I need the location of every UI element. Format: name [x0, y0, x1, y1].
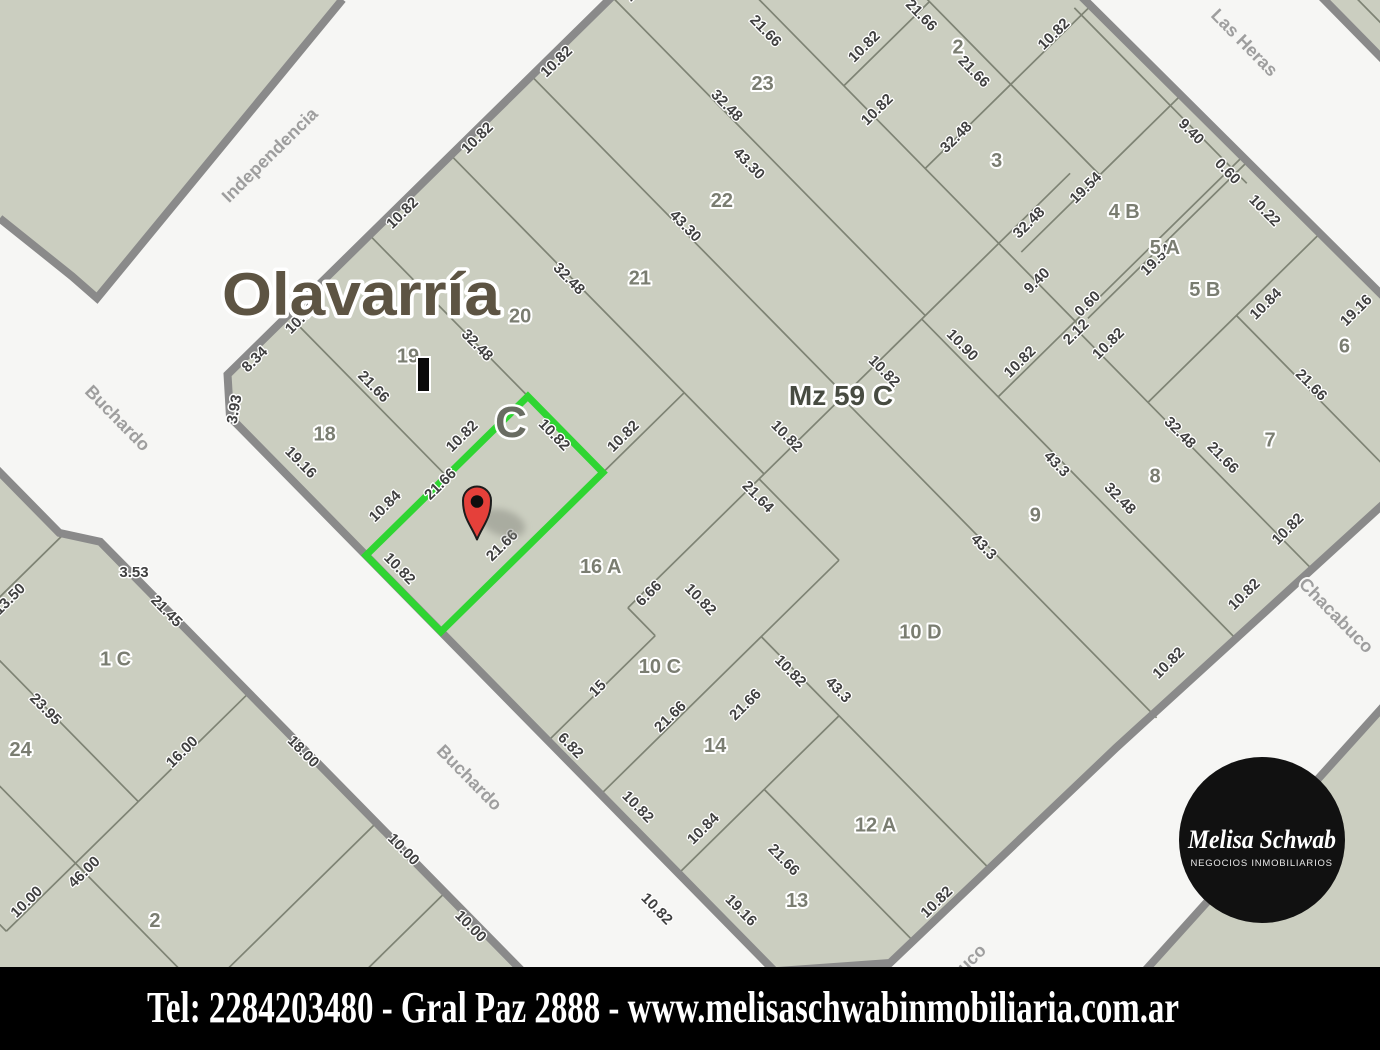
svg-text:2: 2 [952, 37, 963, 59]
svg-text:22: 22 [711, 190, 733, 212]
svg-text:14: 14 [704, 735, 727, 757]
svg-text:19: 19 [397, 346, 419, 368]
svg-text:5 B: 5 B [1189, 279, 1220, 301]
svg-text:23: 23 [751, 73, 773, 95]
svg-text:9: 9 [1030, 505, 1041, 527]
svg-text:1 C: 1 C [100, 649, 131, 671]
svg-text:16 A: 16 A [580, 556, 622, 578]
svg-text:18: 18 [313, 423, 335, 445]
svg-text:C: C [495, 398, 527, 447]
svg-text:10 C: 10 C [639, 656, 681, 678]
svg-text:20: 20 [509, 306, 531, 328]
svg-text:Tel: 2284203480 - Gral Paz 288: Tel: 2284203480 - Gral Paz 2888 - www.me… [147, 983, 1179, 1032]
svg-text:4 B: 4 B [1109, 201, 1140, 223]
svg-text:24: 24 [9, 739, 32, 761]
svg-text:2: 2 [149, 910, 160, 932]
svg-text:6: 6 [1339, 335, 1350, 357]
svg-text:5 A: 5 A [1150, 237, 1180, 259]
svg-text:8: 8 [1150, 465, 1161, 487]
svg-text:NEGOCIOS INMOBILIARIOS: NEGOCIOS INMOBILIARIOS [1191, 858, 1334, 869]
svg-text:10 D: 10 D [899, 622, 941, 644]
svg-text:3.53: 3.53 [119, 564, 148, 581]
svg-text:3: 3 [991, 150, 1002, 172]
svg-text:Olavarría: Olavarría [222, 261, 501, 328]
svg-text:12 A: 12 A [855, 814, 897, 836]
svg-text:7: 7 [1264, 430, 1275, 452]
svg-text:Melisa Schwab: Melisa Schwab [1187, 825, 1336, 854]
svg-text:Mz 59 C: Mz 59 C [789, 380, 893, 411]
svg-text:21: 21 [629, 268, 651, 290]
svg-text:13: 13 [786, 890, 808, 912]
